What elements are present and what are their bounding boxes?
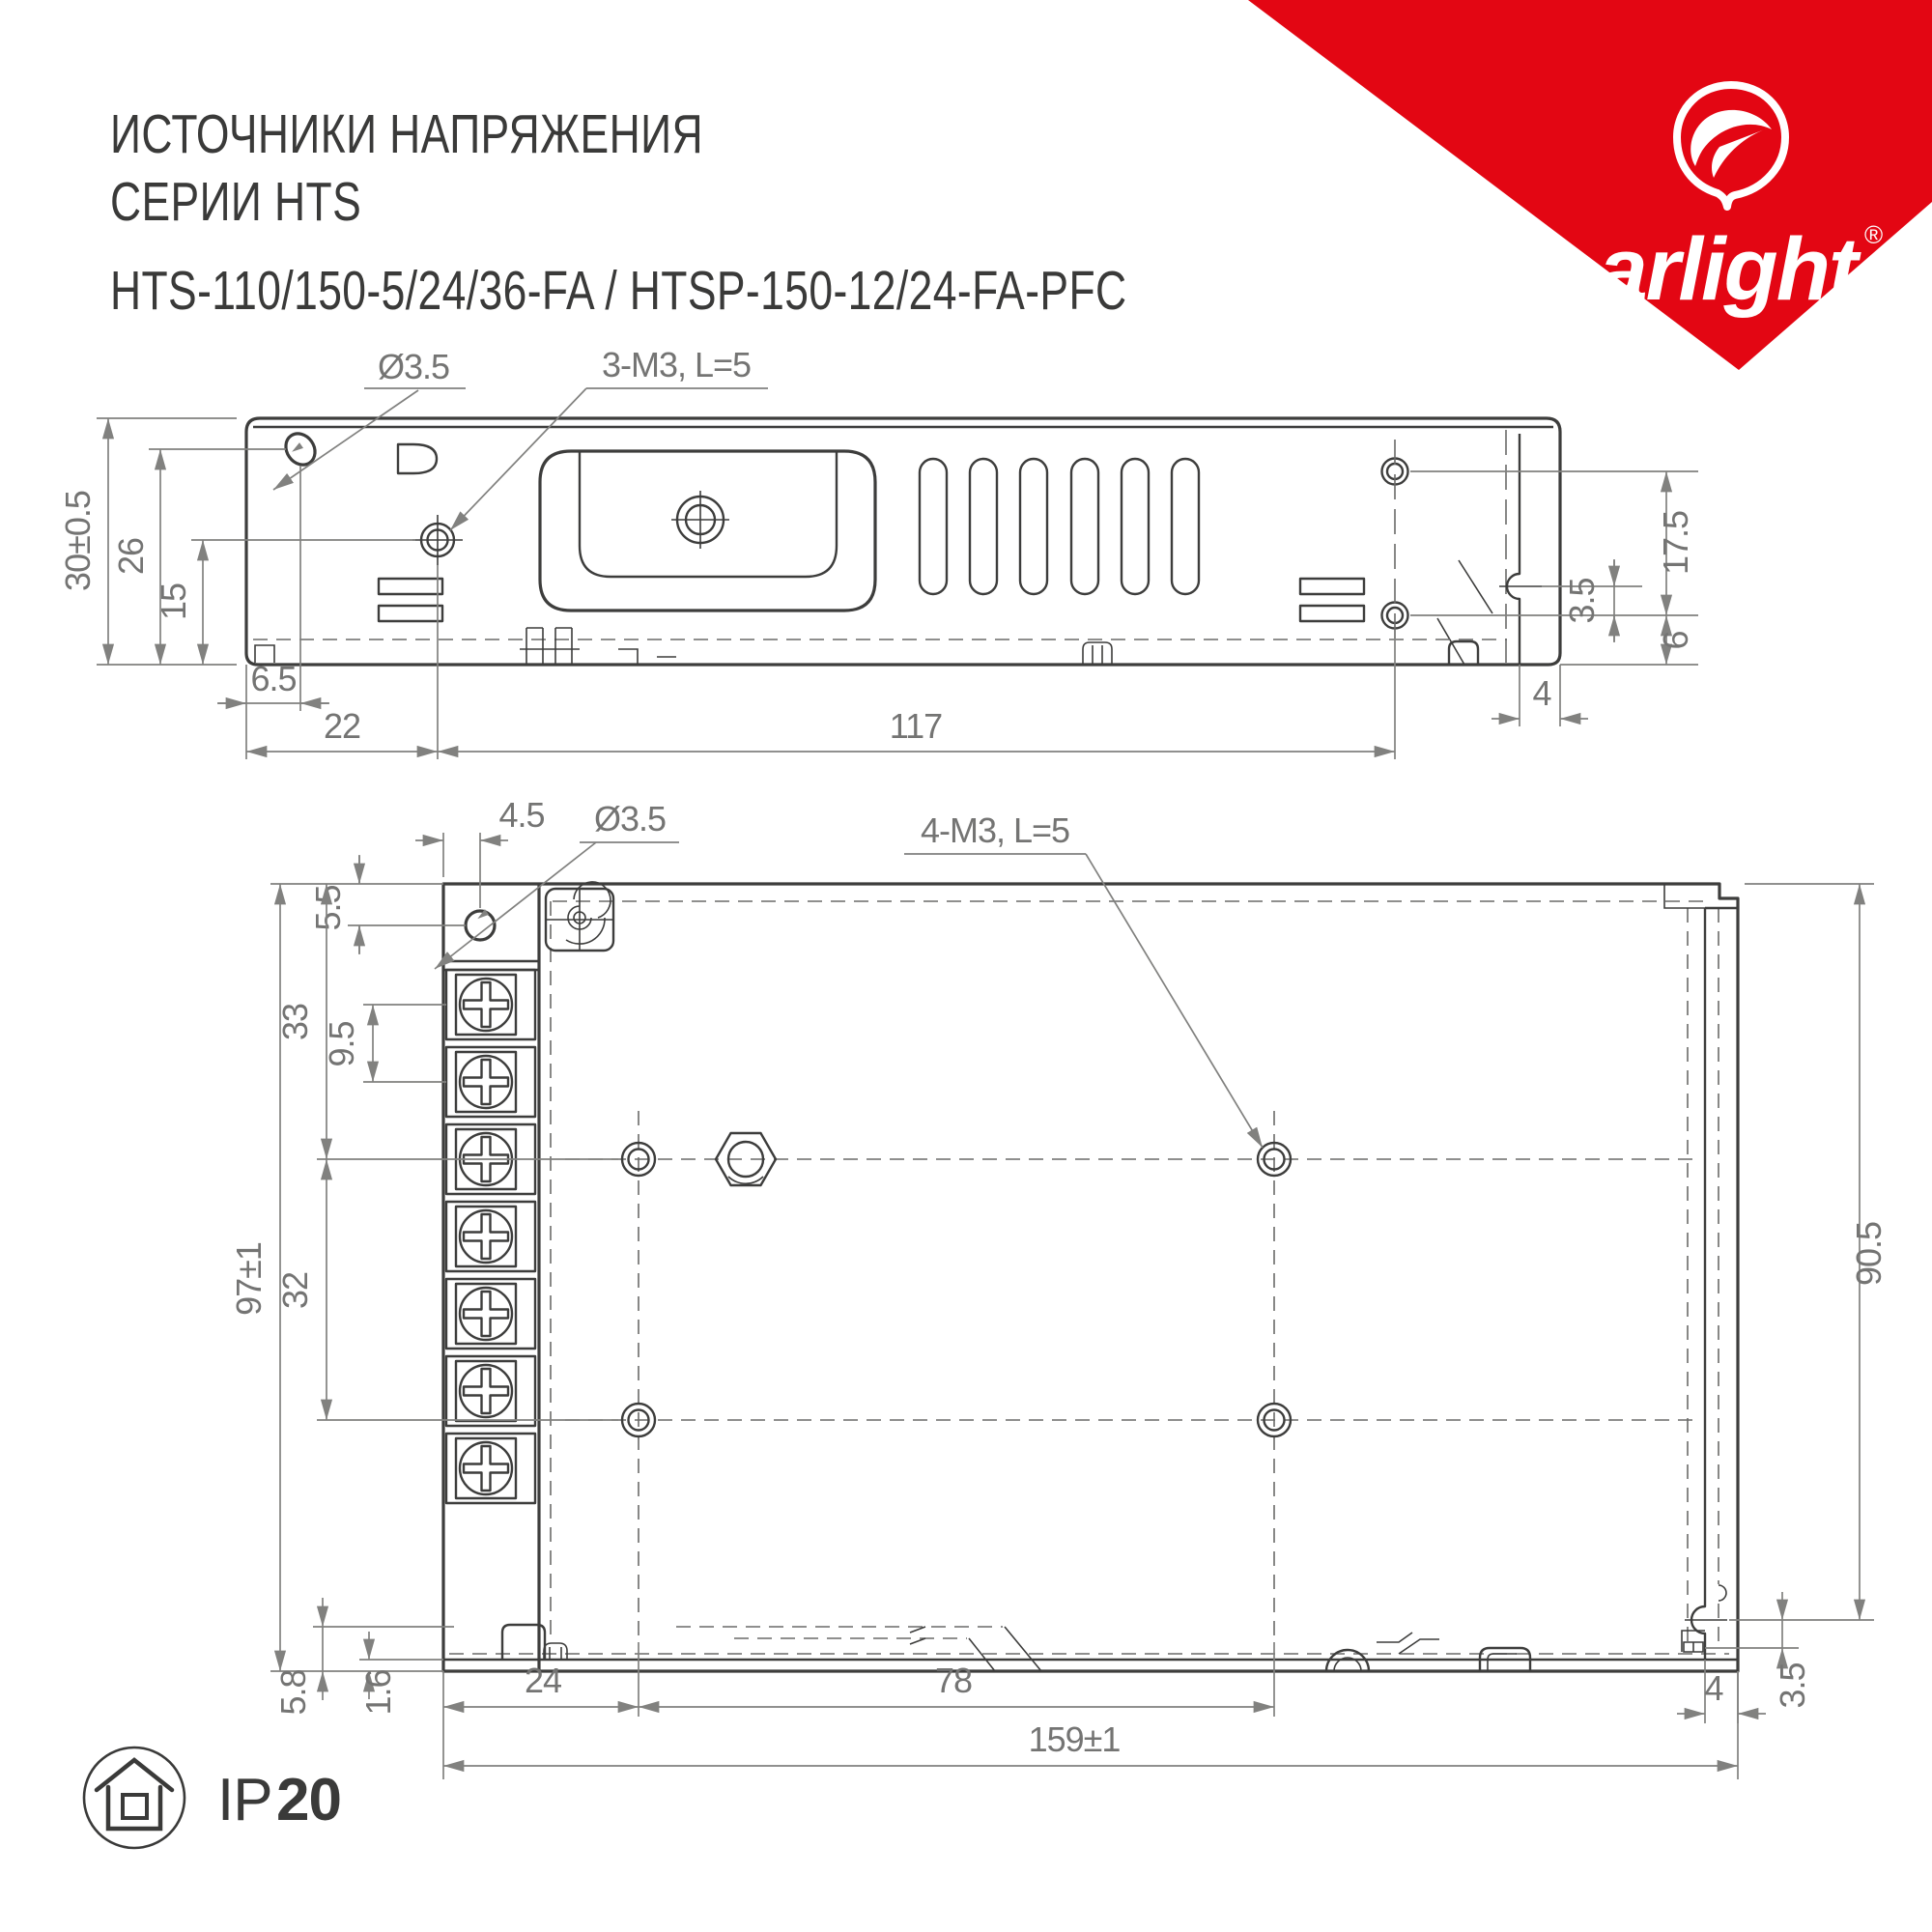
dim-width-total: 97±1	[229, 1242, 269, 1316]
dim-hole-offset: 6.5	[250, 659, 296, 698]
side-hole	[280, 428, 321, 470]
dim-row1-offset: 33	[275, 1004, 315, 1040]
dim-right-screw-span: 17.5	[1656, 511, 1695, 575]
ip-value: 20	[276, 1767, 341, 1833]
dim-col-span: 78	[935, 1661, 972, 1700]
ip20-house-icon	[97, 1760, 172, 1829]
dim-height-total: 30±0.5	[58, 491, 98, 591]
ip-prefix: IP	[217, 1767, 272, 1833]
d-hole	[398, 444, 437, 473]
dim-screw-pitch: 117	[890, 706, 942, 746]
dim-length-total: 159±1	[1029, 1719, 1121, 1759]
top-view-drawing: 4.5 Ø3.5 4-M3, L=5 5.5 33 32 9.5 97±1	[229, 795, 1889, 1779]
top-screws-label: 4-M3, L=5	[921, 810, 1069, 850]
recessed-panel	[540, 451, 875, 611]
potentiometer	[546, 882, 613, 951]
dim-col1-offset: 24	[525, 1661, 561, 1700]
dim-hole-offset-y: 5.5	[308, 885, 348, 930]
panel-screw	[671, 491, 729, 549]
bottom-details	[544, 1627, 1530, 1671]
dim-foot-height: 3.5	[1773, 1662, 1812, 1708]
right-wall	[1664, 884, 1738, 1660]
terminal-screws	[446, 970, 535, 1503]
dim-wall-thickness: 1.6	[358, 1669, 398, 1715]
dim-row-span: 32	[275, 1272, 315, 1309]
dim-screw-height: 15	[154, 583, 193, 620]
base-feet	[255, 628, 1112, 665]
dim-bottom-screw-height: 6	[1656, 631, 1695, 649]
side-screws-label: 3-M3, L=5	[602, 345, 751, 384]
mounting-holes	[565, 1111, 1700, 1637]
dim-screw-offset: 22	[324, 706, 360, 746]
dim-hole-offset-x: 4.5	[498, 795, 544, 835]
brand-corner: arlight ®	[1248, 0, 1932, 370]
dim-flange-depth-top: 4	[1704, 1668, 1722, 1708]
side-view-drawing: Ø3.5 3-M3, L=5 30±0.5 26 15 6.5 22 117	[58, 345, 1698, 759]
brand-wordmark: arlight	[1598, 220, 1861, 319]
side-m3-screw	[412, 515, 463, 565]
dim-depth: 90.5	[1849, 1222, 1889, 1286]
hex-nut	[716, 1133, 776, 1185]
page: ИСТОЧНИКИ НАПРЯЖЕНИЯ СЕРИИ HTS HTS-110/1…	[0, 0, 1932, 1932]
top-hole-label: Ø3.5	[594, 799, 666, 838]
dim-hole-height: 26	[111, 538, 151, 575]
brand-registered: ®	[1864, 220, 1883, 249]
end-flange	[1437, 430, 1542, 665]
vent-slots	[920, 459, 1199, 594]
dim-terminal-pitch: 9.5	[322, 1021, 361, 1066]
dim-flange-depth: 4	[1532, 673, 1550, 713]
side-hole-label: Ø3.5	[378, 347, 449, 386]
dim-foot-offset: 5.8	[273, 1669, 313, 1715]
dim-slot-offset: 3.5	[1562, 578, 1602, 623]
ip-rating: IP 20	[84, 1747, 341, 1848]
end-screws	[1382, 440, 1408, 647]
